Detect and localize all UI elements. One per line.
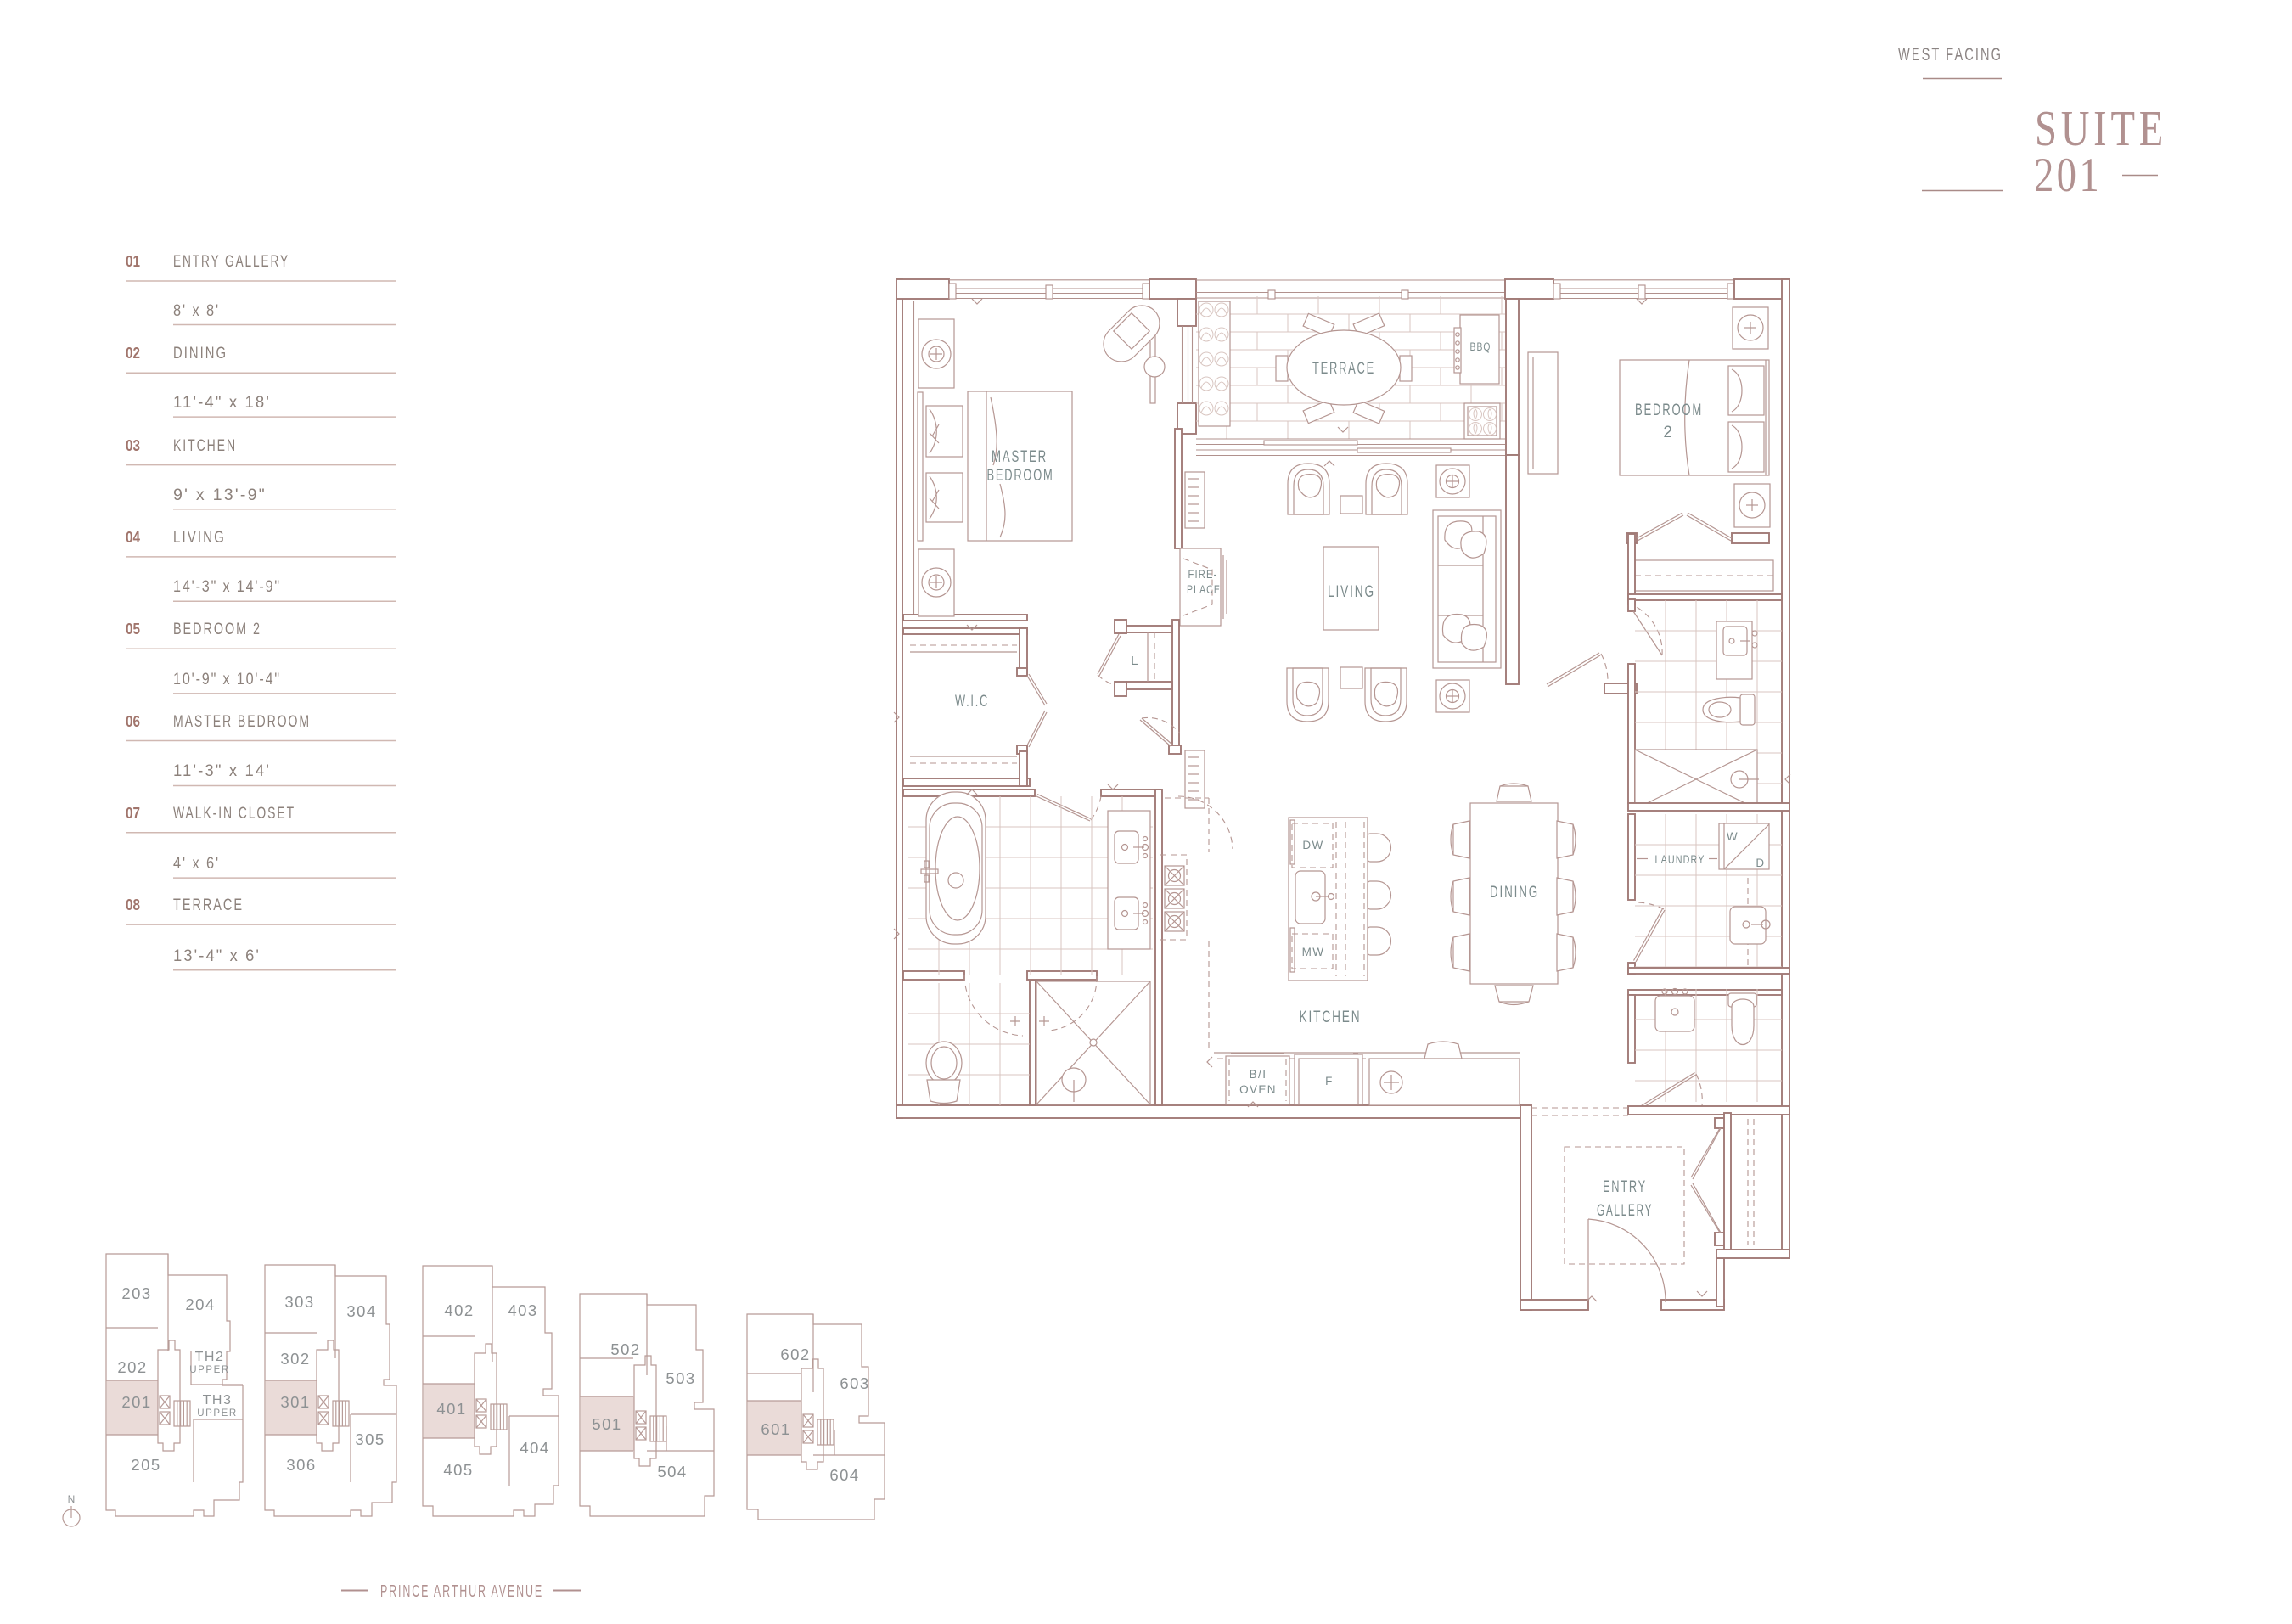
- svg-text:MW: MW: [1302, 946, 1325, 958]
- svg-text:UPPER: UPPER: [189, 1365, 230, 1375]
- svg-text:D: D: [1756, 857, 1765, 869]
- svg-text:403: 403: [508, 1301, 537, 1319]
- svg-text:202: 202: [117, 1358, 147, 1376]
- svg-text:401: 401: [436, 1400, 466, 1418]
- svg-text:ENTRY GALLERY: ENTRY GALLERY: [173, 253, 289, 271]
- svg-text:TH3: TH3: [203, 1393, 233, 1408]
- svg-text:01: 01: [126, 253, 140, 270]
- svg-text:LAUNDRY: LAUNDRY: [1655, 853, 1705, 866]
- svg-text:PLACE: PLACE: [1187, 583, 1221, 596]
- svg-text:LIVING: LIVING: [173, 529, 226, 547]
- svg-text:W: W: [1727, 830, 1739, 843]
- svg-text:201: 201: [2034, 149, 2102, 202]
- svg-text:05: 05: [126, 621, 140, 638]
- svg-text:203: 203: [121, 1284, 151, 1302]
- svg-text:F: F: [1325, 1075, 1334, 1087]
- svg-text:404: 404: [520, 1439, 549, 1457]
- svg-text:306: 306: [286, 1456, 316, 1474]
- svg-text:9' x 13'-9": 9' x 13'-9": [173, 486, 267, 504]
- svg-text:UPPER: UPPER: [197, 1408, 238, 1419]
- svg-text:LIVING: LIVING: [1328, 583, 1375, 601]
- svg-text:PRINCE ARTHUR AVENUE: PRINCE ARTHUR AVENUE: [380, 1582, 543, 1601]
- svg-text:MASTER: MASTER: [992, 448, 1048, 466]
- svg-text:504: 504: [657, 1463, 687, 1481]
- svg-text:DINING: DINING: [173, 345, 228, 362]
- svg-text:WALK-IN CLOSET: WALK-IN CLOSET: [173, 805, 295, 823]
- svg-text:501: 501: [592, 1415, 621, 1433]
- svg-text:305: 305: [355, 1430, 385, 1448]
- svg-text:13'-4" x 6': 13'-4" x 6': [173, 947, 261, 965]
- svg-text:204: 204: [185, 1295, 215, 1313]
- svg-text:4' x 6': 4' x 6': [173, 855, 220, 873]
- svg-text:DW: DW: [1302, 839, 1323, 851]
- svg-text:11'-3" x 14': 11'-3" x 14': [173, 762, 271, 780]
- svg-text:14'-3" x 14'-9": 14'-3" x 14'-9": [173, 578, 281, 596]
- svg-text:503: 503: [666, 1369, 695, 1387]
- svg-text:MASTER BEDROOM: MASTER BEDROOM: [173, 713, 311, 731]
- svg-text:N: N: [68, 1493, 76, 1505]
- svg-text:04: 04: [126, 529, 140, 546]
- svg-text:KITCHEN: KITCHEN: [1300, 1009, 1362, 1026]
- svg-text:502: 502: [610, 1340, 640, 1358]
- svg-text:B/I: B/I: [1250, 1068, 1267, 1081]
- svg-text:301: 301: [280, 1393, 310, 1411]
- svg-text:TH2: TH2: [195, 1350, 225, 1364]
- svg-text:402: 402: [444, 1301, 474, 1319]
- svg-text:BBQ: BBQ: [1470, 340, 1491, 353]
- svg-text:2: 2: [1663, 424, 1674, 441]
- svg-text:602: 602: [780, 1346, 810, 1363]
- svg-text:BEDROOM 2: BEDROOM 2: [173, 621, 261, 638]
- svg-text:604: 604: [829, 1466, 859, 1484]
- svg-text:KITCHEN: KITCHEN: [173, 437, 237, 455]
- svg-text:GALLERY: GALLERY: [1597, 1202, 1653, 1220]
- svg-text:303: 303: [284, 1293, 314, 1311]
- svg-text:03: 03: [126, 437, 140, 454]
- svg-text:DINING: DINING: [1490, 884, 1539, 902]
- svg-text:06: 06: [126, 713, 140, 730]
- svg-text:601: 601: [761, 1420, 790, 1438]
- svg-text:02: 02: [126, 345, 140, 362]
- svg-text:FIRE-: FIRE-: [1188, 568, 1218, 581]
- svg-text:TERRACE: TERRACE: [1312, 360, 1375, 378]
- svg-text:TERRACE: TERRACE: [173, 896, 244, 914]
- svg-text:10'-9" x 10'-4": 10'-9" x 10'-4": [173, 671, 281, 688]
- svg-text:ENTRY: ENTRY: [1603, 1178, 1647, 1196]
- svg-text:201: 201: [121, 1393, 151, 1411]
- svg-text:603: 603: [840, 1374, 869, 1392]
- svg-text:BEDROOM: BEDROOM: [1635, 402, 1703, 419]
- svg-text:L: L: [1131, 654, 1139, 668]
- svg-text:W.I.C: W.I.C: [955, 693, 989, 711]
- svg-text:07: 07: [126, 805, 140, 822]
- svg-text:08: 08: [126, 896, 140, 913]
- svg-text:304: 304: [346, 1302, 376, 1320]
- svg-text:BEDROOM: BEDROOM: [987, 467, 1054, 485]
- svg-text:WEST FACING: WEST FACING: [1898, 45, 2003, 65]
- svg-text:405: 405: [443, 1461, 473, 1479]
- svg-text:205: 205: [131, 1456, 160, 1474]
- svg-text:OVEN: OVEN: [1239, 1083, 1277, 1096]
- svg-text:302: 302: [280, 1350, 310, 1368]
- svg-text:11'-4" x 18': 11'-4" x 18': [173, 394, 271, 412]
- svg-text:8' x 8': 8' x 8': [173, 302, 220, 320]
